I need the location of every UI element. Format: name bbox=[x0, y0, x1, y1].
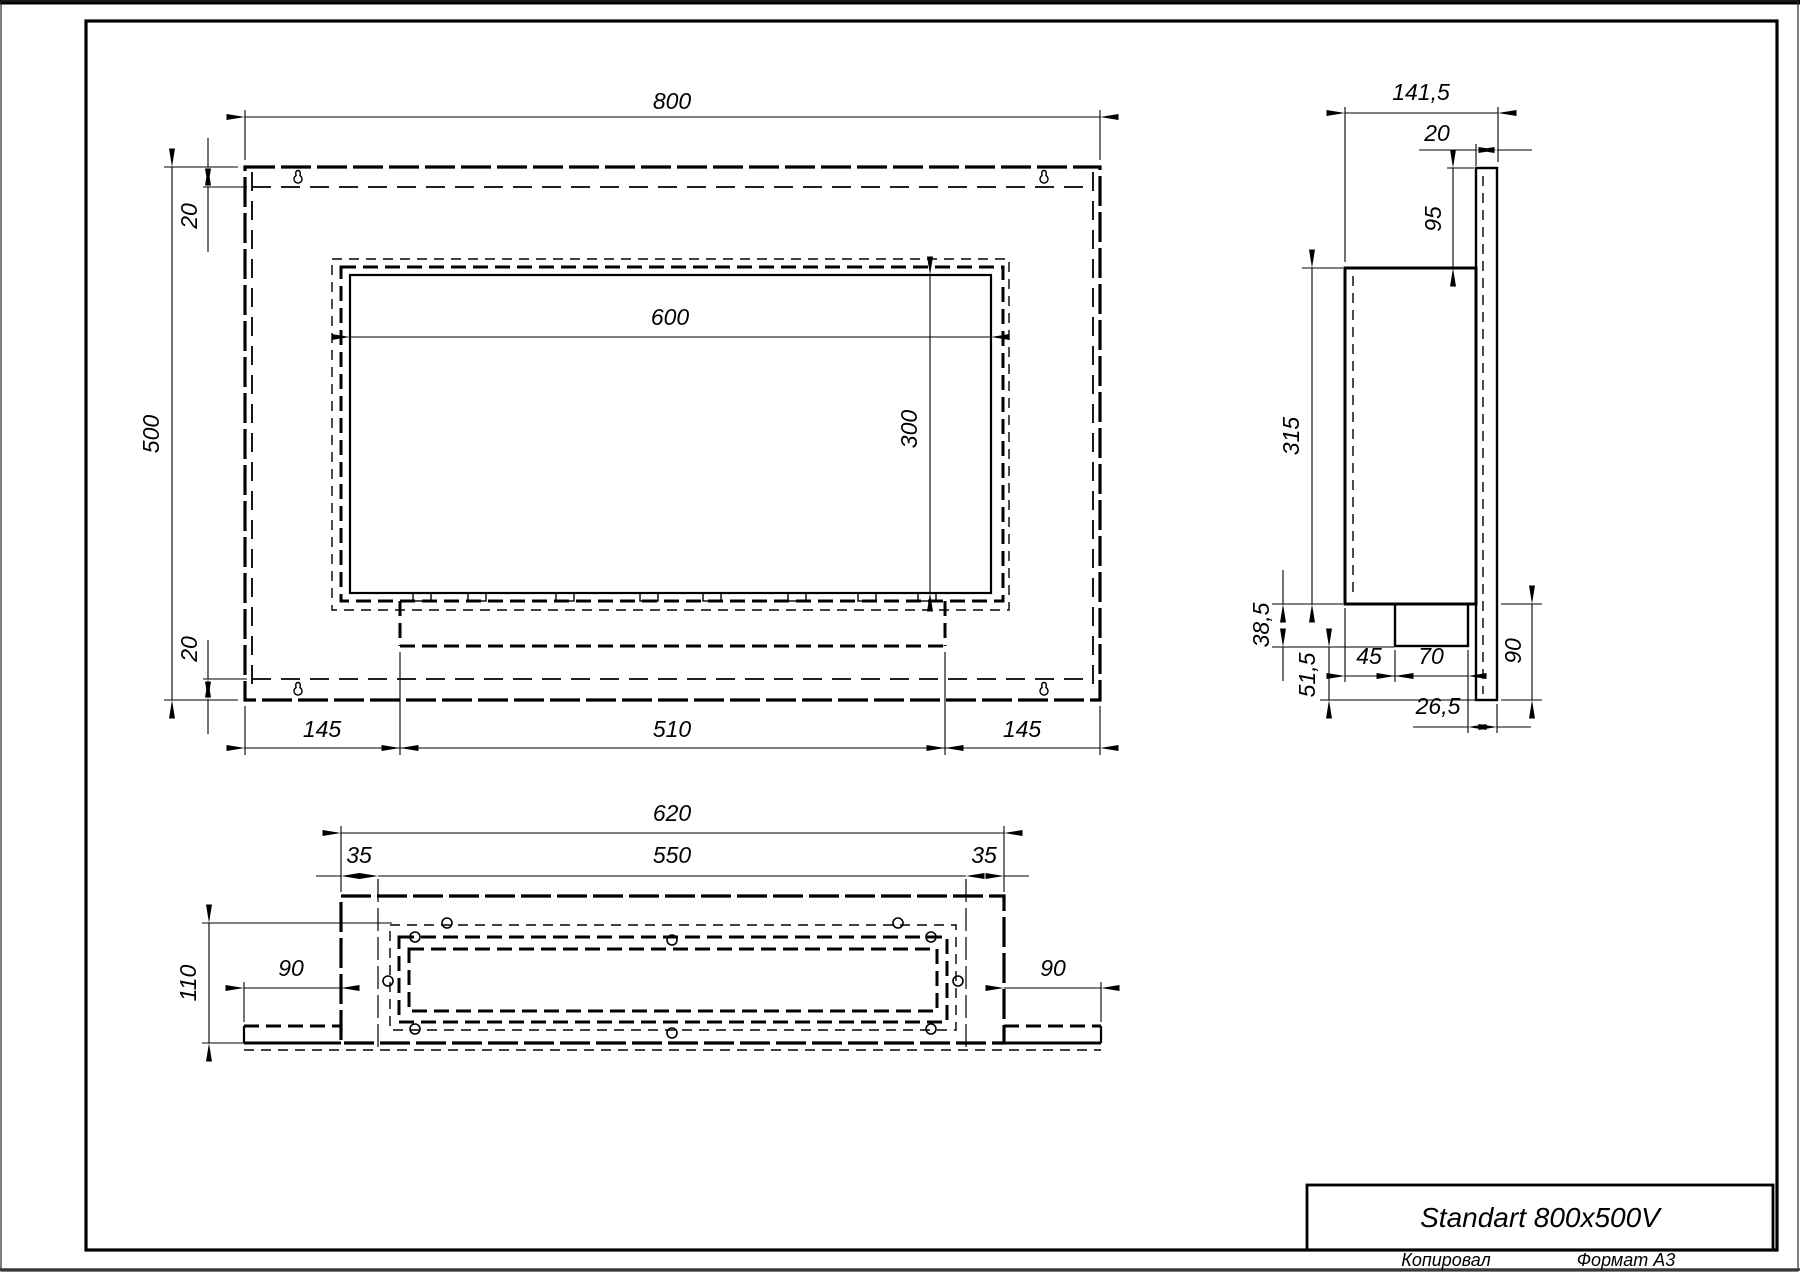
copied-label: Копировал bbox=[1401, 1250, 1491, 1270]
dim-bottom-left-flange: 35 bbox=[346, 842, 372, 868]
dim-front-left-offset: 145 bbox=[303, 716, 342, 742]
dim-front-overall-width: 800 bbox=[653, 88, 692, 114]
paper-background bbox=[0, 0, 1800, 1273]
dim-side-burner-drop: 38,5 bbox=[1248, 602, 1274, 647]
dim-bottom-body-depth: 110 bbox=[175, 964, 201, 1001]
dim-front-tray-width: 510 bbox=[653, 716, 692, 742]
dim-side-plate-top-extension: 95 bbox=[1420, 206, 1446, 232]
format-label: Формат A3 bbox=[1577, 1250, 1676, 1270]
dim-side-rear-clearance: 26,5 bbox=[1415, 693, 1461, 719]
dim-front-overall-height: 500 bbox=[138, 415, 164, 454]
dim-front-bottom-inset: 20 bbox=[176, 636, 202, 663]
dim-bottom-right-plate-extension: 90 bbox=[1040, 955, 1066, 981]
dim-bottom-left-plate-extension: 90 bbox=[278, 955, 304, 981]
dim-side-plate-bottom-extension: 90 bbox=[1500, 638, 1526, 664]
dim-side-lower-drop: 51,5 bbox=[1294, 652, 1320, 697]
dim-bottom-opening-width: 550 bbox=[653, 842, 692, 868]
dim-side-overall-depth: 141,5 bbox=[1392, 79, 1450, 105]
dim-front-opening-height: 300 bbox=[896, 410, 922, 449]
dim-front-opening-width: 600 bbox=[651, 304, 690, 330]
dim-bottom-right-flange: 35 bbox=[971, 842, 997, 868]
dim-side-plate-thickness: 20 bbox=[1423, 120, 1450, 146]
dim-front-top-inset: 20 bbox=[176, 203, 202, 230]
dim-front-right-offset: 145 bbox=[1003, 716, 1042, 742]
sheet-frame bbox=[0, 0, 1800, 1273]
dim-side-body-height: 315 bbox=[1278, 417, 1304, 456]
technical-drawing-canvas: 800 500 20 20 600 300 145 510 145 bbox=[0, 0, 1800, 1273]
drawing-page: 800 500 20 20 600 300 145 510 145 bbox=[0, 0, 1800, 1273]
dim-bottom-body-width: 620 bbox=[653, 800, 692, 826]
dim-side-burner-depth: 70 bbox=[1418, 643, 1444, 669]
product-title: Standart 800x500V bbox=[1420, 1202, 1662, 1233]
dim-side-burner-offset: 45 bbox=[1356, 643, 1382, 669]
